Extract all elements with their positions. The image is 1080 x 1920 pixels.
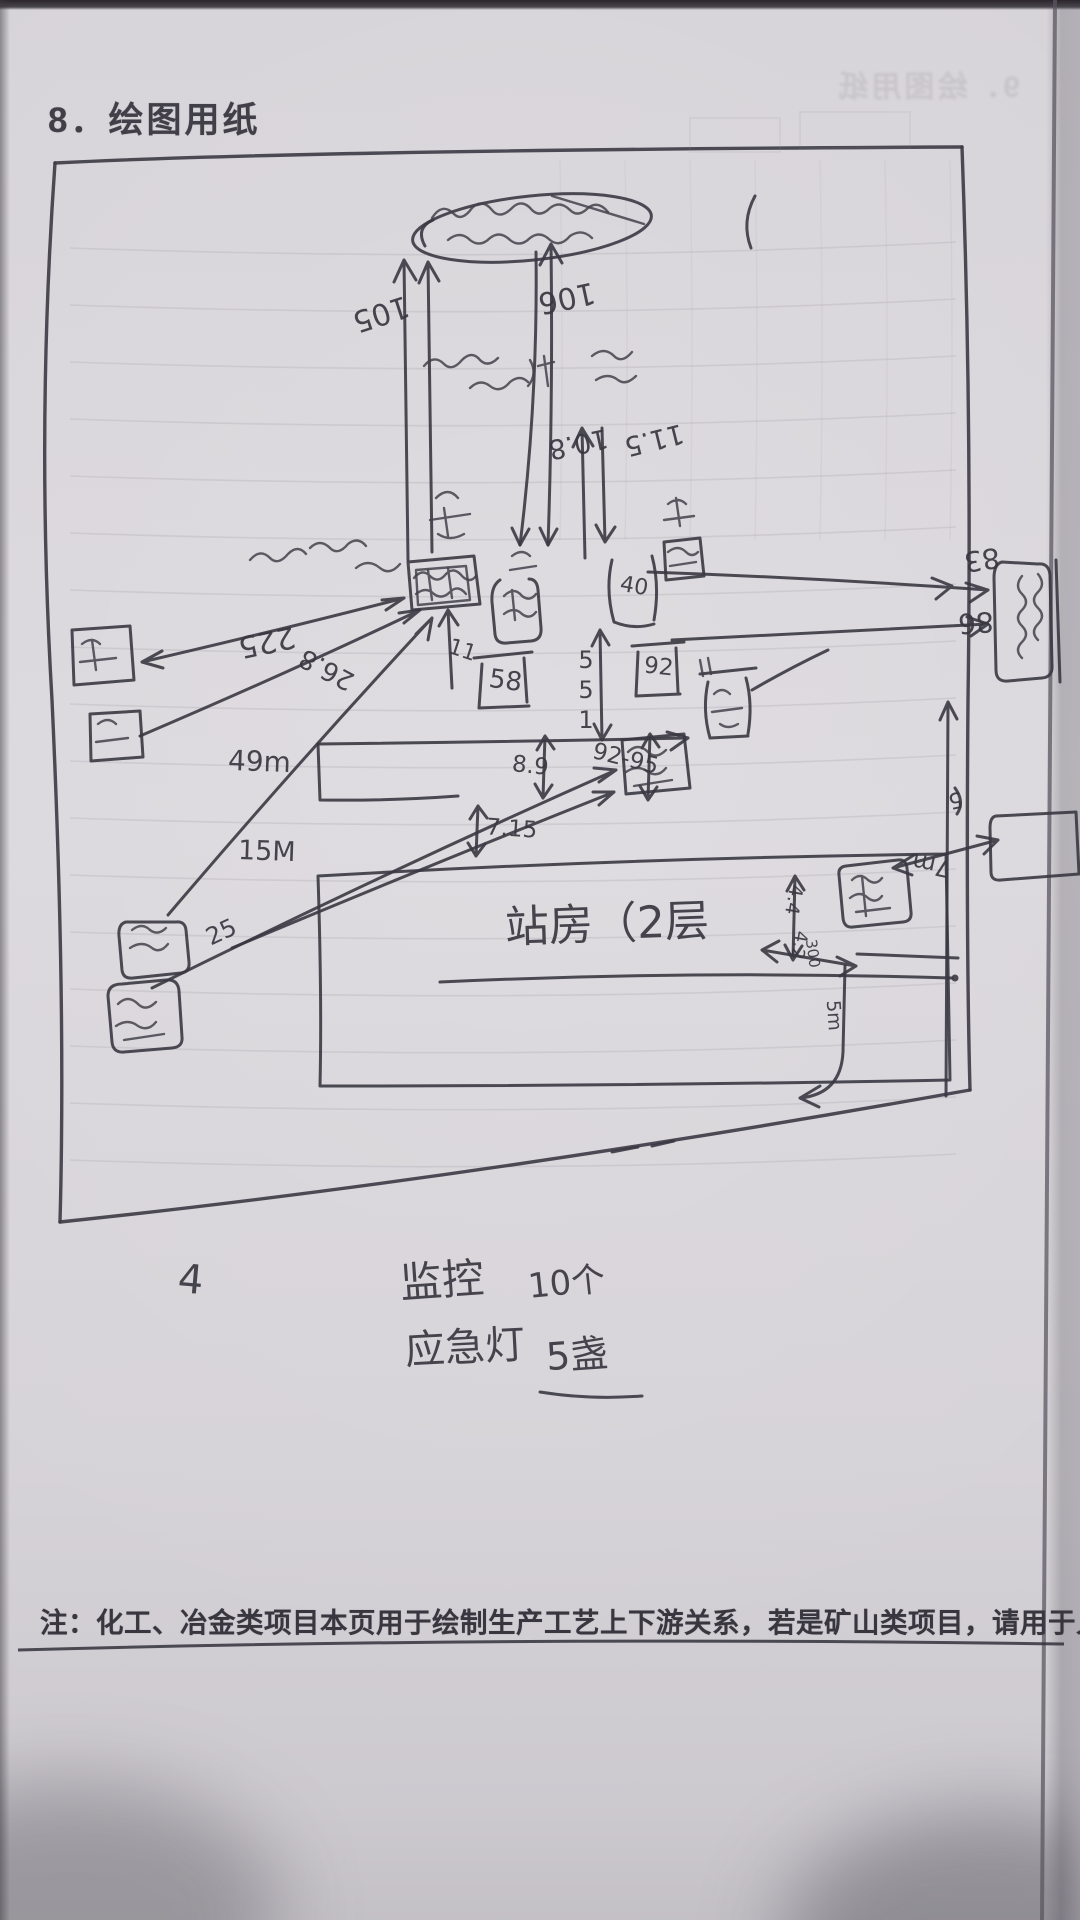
handwritten-annotation-10: 92 (643, 655, 675, 681)
handwritten-annotation-15: 49m (228, 747, 292, 777)
handwritten-annotation-23: 5m (823, 1000, 844, 1032)
handwritten-annotation-22: 300 (803, 938, 822, 968)
handwritten-annotation-9: 58 (487, 666, 523, 696)
handwritten-annotation-11: 40 (618, 574, 649, 601)
handwritten-annotation-26: 监控 (399, 1257, 486, 1305)
handwritten-annotation-28: 应急灯 (404, 1325, 526, 1371)
handwritten-annotation-24: 5 (946, 787, 964, 811)
handwritten-annotation-4: 225 (236, 620, 298, 661)
handwritten-annotation-17: 25 (202, 915, 240, 950)
handwritten-annotation-12: 8.9 (511, 753, 550, 780)
handwritten-annotation-1: 106 (536, 276, 598, 317)
handwritten-annotations-layer: 10510610.811.522526.883865515892408.992-… (0, 0, 1080, 1920)
handwritten-annotation-29: 5盏 (545, 1334, 610, 1376)
handwritten-annotation-25: 站房（2层 (504, 899, 709, 950)
handwritten-annotation-18: 11 (445, 636, 478, 666)
handwritten-annotation-2: 10.8 (546, 424, 610, 463)
handwritten-annotation-20: 4.4 (781, 883, 805, 916)
photographed-document-page: 8．绘图用纸 9．绘图用纸 注：化工、冶金类项目本页用于绘制生产工艺上下游关系，… (0, 0, 1080, 1920)
handwritten-annotation-13: 92-95 (590, 740, 660, 778)
handwritten-annotation-14: 7.15 (485, 816, 538, 843)
handwritten-annotation-27: 10个 (526, 1262, 606, 1304)
handwritten-annotation-5: 26.8 (295, 644, 358, 694)
handwritten-annotation-7: 86 (957, 607, 995, 637)
handwritten-annotation-19: 7m (910, 849, 953, 881)
handwritten-annotation-6: 83 (962, 543, 1001, 576)
handwritten-annotation-3: 11.5 (622, 419, 687, 460)
handwritten-annotation-8: 551 (574, 646, 598, 736)
handwritten-annotation-30: 4 (176, 1259, 205, 1301)
handwritten-annotation-0: 105 (349, 290, 413, 336)
handwritten-annotation-16: 15M (238, 837, 297, 866)
